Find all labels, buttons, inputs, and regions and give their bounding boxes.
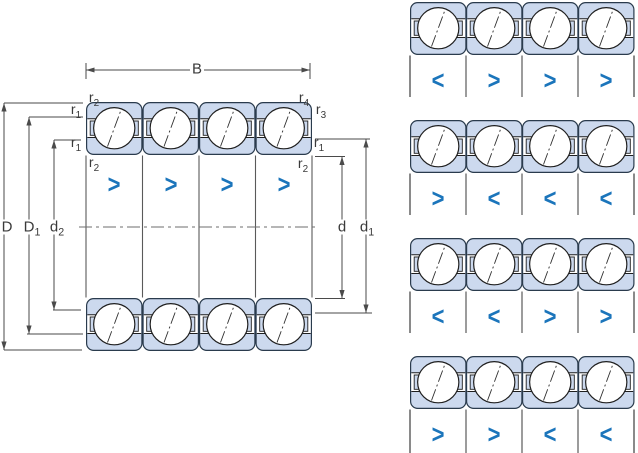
bearing-unit [87,299,142,351]
chevron-row1-col2: > [488,68,501,94]
bearing-unit [87,103,142,155]
radius-label-top-right-outer: r4 [299,90,309,104]
chevron-main-2: > [164,172,177,198]
radius-label-top-right-inner: r3 [316,102,326,116]
radius-label-mid-right-upper: r1 [314,135,324,149]
radius-label-top-left-outer: r2 [89,90,99,104]
bearing-unit [256,103,311,155]
chevron-row4-col1: > [432,422,445,448]
bearing-unit [143,299,198,351]
bearing-unit [200,103,255,155]
bearing-technical-drawing: B r2 r1 r4 r3 r1 r2 r1 r2 D D1 d2 d d1 >… [0,0,638,453]
radius-label-mid-left-upper: r1 [71,135,81,149]
chevron-row3-col4: > [600,304,613,330]
chevron-row2-col4: < [600,186,613,212]
chevron-main-3: > [221,172,234,198]
diameter-label-d: d [336,220,348,235]
bearing-unit [467,3,522,55]
bearing-unit [411,3,466,55]
bearing-unit [579,239,634,291]
bearing-unit [523,239,578,291]
radius-label-mid-right-lower: r2 [298,156,308,170]
chevron-row4-col3: < [544,422,557,448]
bearing-unit [411,239,466,291]
main-bearing-bottom-row [87,299,312,351]
chevron-row1-col4: > [600,68,613,94]
bearing-unit [523,121,578,173]
radius-label-top-left-inner: r1 [71,102,81,116]
bearing-unit [579,3,634,55]
bearing-unit [200,299,255,351]
bearing-unit [411,121,466,173]
bearing-diagram-canvas [0,0,638,453]
bearing-unit [467,357,522,409]
chevron-row4-col4: < [600,422,613,448]
chevron-row3-col3: > [544,304,557,330]
bearing-unit [143,103,198,155]
chevron-row2-col3: < [544,186,557,212]
chevron-row1-col3: > [544,68,557,94]
chevron-row1-col1: < [432,68,445,94]
chevron-row4-col2: > [488,422,501,448]
chevron-row3-col1: < [432,304,445,330]
main-bearing-top-row [87,103,312,155]
diameter-label-D1: D1 [22,220,43,235]
bearing-unit [256,299,311,351]
bearing-unit [579,121,634,173]
bearing-unit [467,121,522,173]
chevron-main-1: > [108,172,121,198]
diameter-label-d1: d1 [358,220,376,235]
bearing-unit [579,357,634,409]
diameter-label-d2: d2 [48,220,66,235]
bearing-unit [411,357,466,409]
chevron-row2-col1: > [432,186,445,212]
bearing-unit [467,239,522,291]
diameter-label-D: D [0,220,14,235]
chevron-row2-col2: < [488,186,501,212]
bearing-unit [523,3,578,55]
width-label-B: B [190,62,204,77]
chevron-main-4: > [277,172,290,198]
bearing-unit [523,357,578,409]
chevron-row3-col2: < [488,304,501,330]
radius-label-mid-left-lower: r2 [89,155,99,169]
